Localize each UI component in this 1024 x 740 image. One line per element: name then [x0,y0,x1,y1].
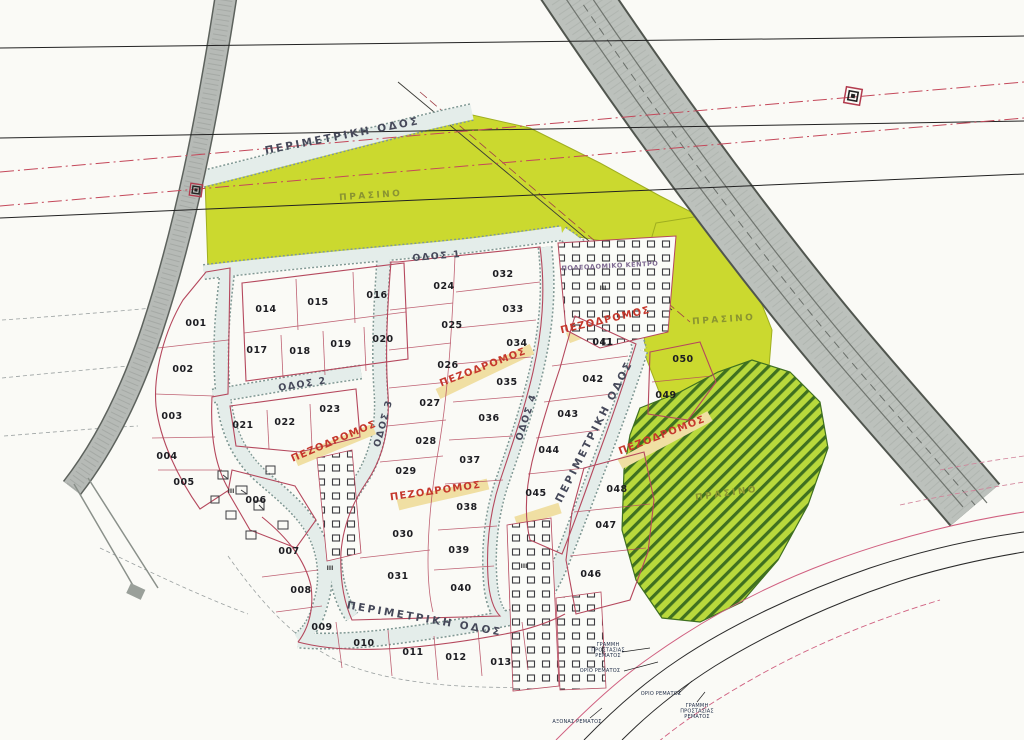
plot-number-007: 007 [278,546,299,557]
plot-number-043: 043 [557,409,578,420]
plot-number-028: 028 [415,436,436,447]
plot-number-030: 030 [392,529,413,540]
plot-number-050: 050 [672,354,693,365]
plot-number-038: 038 [456,502,477,513]
plot-number-009: 009 [311,622,332,633]
stream-annotation-5: ΑΞΟΝΑΣ ΡΕΜΑΤΟΣ [552,719,601,725]
plot-number-037: 037 [459,455,480,466]
plot-number-008: 008 [290,585,311,596]
plot-number-042: 042 [582,374,603,385]
plot-number-033: 033 [502,304,523,315]
block-mark-3: III [228,488,235,495]
block-mark-4: III [327,565,334,572]
plot-number-023: 023 [319,404,340,415]
block-mark-1: III [600,285,607,292]
plot-number-002: 002 [172,364,193,375]
plot-number-049: 049 [655,390,676,401]
plot-number-035: 035 [496,377,517,388]
plot-number-036: 036 [478,413,499,424]
plot-number-016: 016 [366,290,387,301]
plot-number-005: 005 [173,477,194,488]
plot-number-017: 017 [246,345,267,356]
plot-number-011: 011 [402,647,423,658]
plot-number-015: 015 [307,297,328,308]
plot-number-022: 022 [274,417,295,428]
stream-annotation-3: ΟΡΙΟ ΡΕΜΑΤΟΣ [641,691,681,697]
plot-number-047: 047 [595,520,616,531]
plot-number-020: 020 [372,334,393,345]
plot-number-013: 013 [490,657,511,668]
plot-number-046: 046 [580,569,601,580]
plot-number-021: 021 [232,420,253,431]
plot-number-027: 027 [419,398,440,409]
plot-number-044: 044 [538,445,559,456]
plot-number-004: 004 [156,451,177,462]
plot-number-003: 003 [161,411,182,422]
plot-number-031: 031 [387,571,408,582]
plot-number-019: 019 [330,339,351,350]
plot-number-026: 026 [437,360,458,371]
plot-number-032: 032 [492,269,513,280]
plot-number-040: 040 [450,583,471,594]
plot-number-012: 012 [445,652,466,663]
plot-number-025: 025 [441,320,462,331]
plot-number-029: 029 [395,466,416,477]
scanned-subdivision-plan: ΠΕΡΙΜΕΤΡΙΚΗ ΟΔΟΣΟΔΟΣ 1ΟΔΟΣ 2ΟΔΟΣ 3ΟΔΟΣ 4… [0,0,1024,740]
stream-annotation-2: ΟΡΙΟ ΡΕΜΑΤΟΣ [580,668,620,674]
plot-number-048: 048 [606,484,627,495]
plot-number-039: 039 [448,545,469,556]
plot-number-014: 014 [255,304,276,315]
plot-number-006: 006 [245,495,266,506]
plot-number-001: 001 [185,318,206,329]
plot-number-024: 024 [433,281,454,292]
plan-drawing: ΠΕΡΙΜΕΤΡΙΚΗ ΟΔΟΣΟΔΟΣ 1ΟΔΟΣ 2ΟΔΟΣ 3ΟΔΟΣ 4… [0,0,1024,740]
plot-number-010: 010 [353,638,374,649]
block-mark-2: III [521,563,528,570]
plot-number-045: 045 [525,488,546,499]
plot-number-041: 041 [592,337,613,348]
plot-number-034: 034 [506,338,527,349]
plot-number-018: 018 [289,346,310,357]
